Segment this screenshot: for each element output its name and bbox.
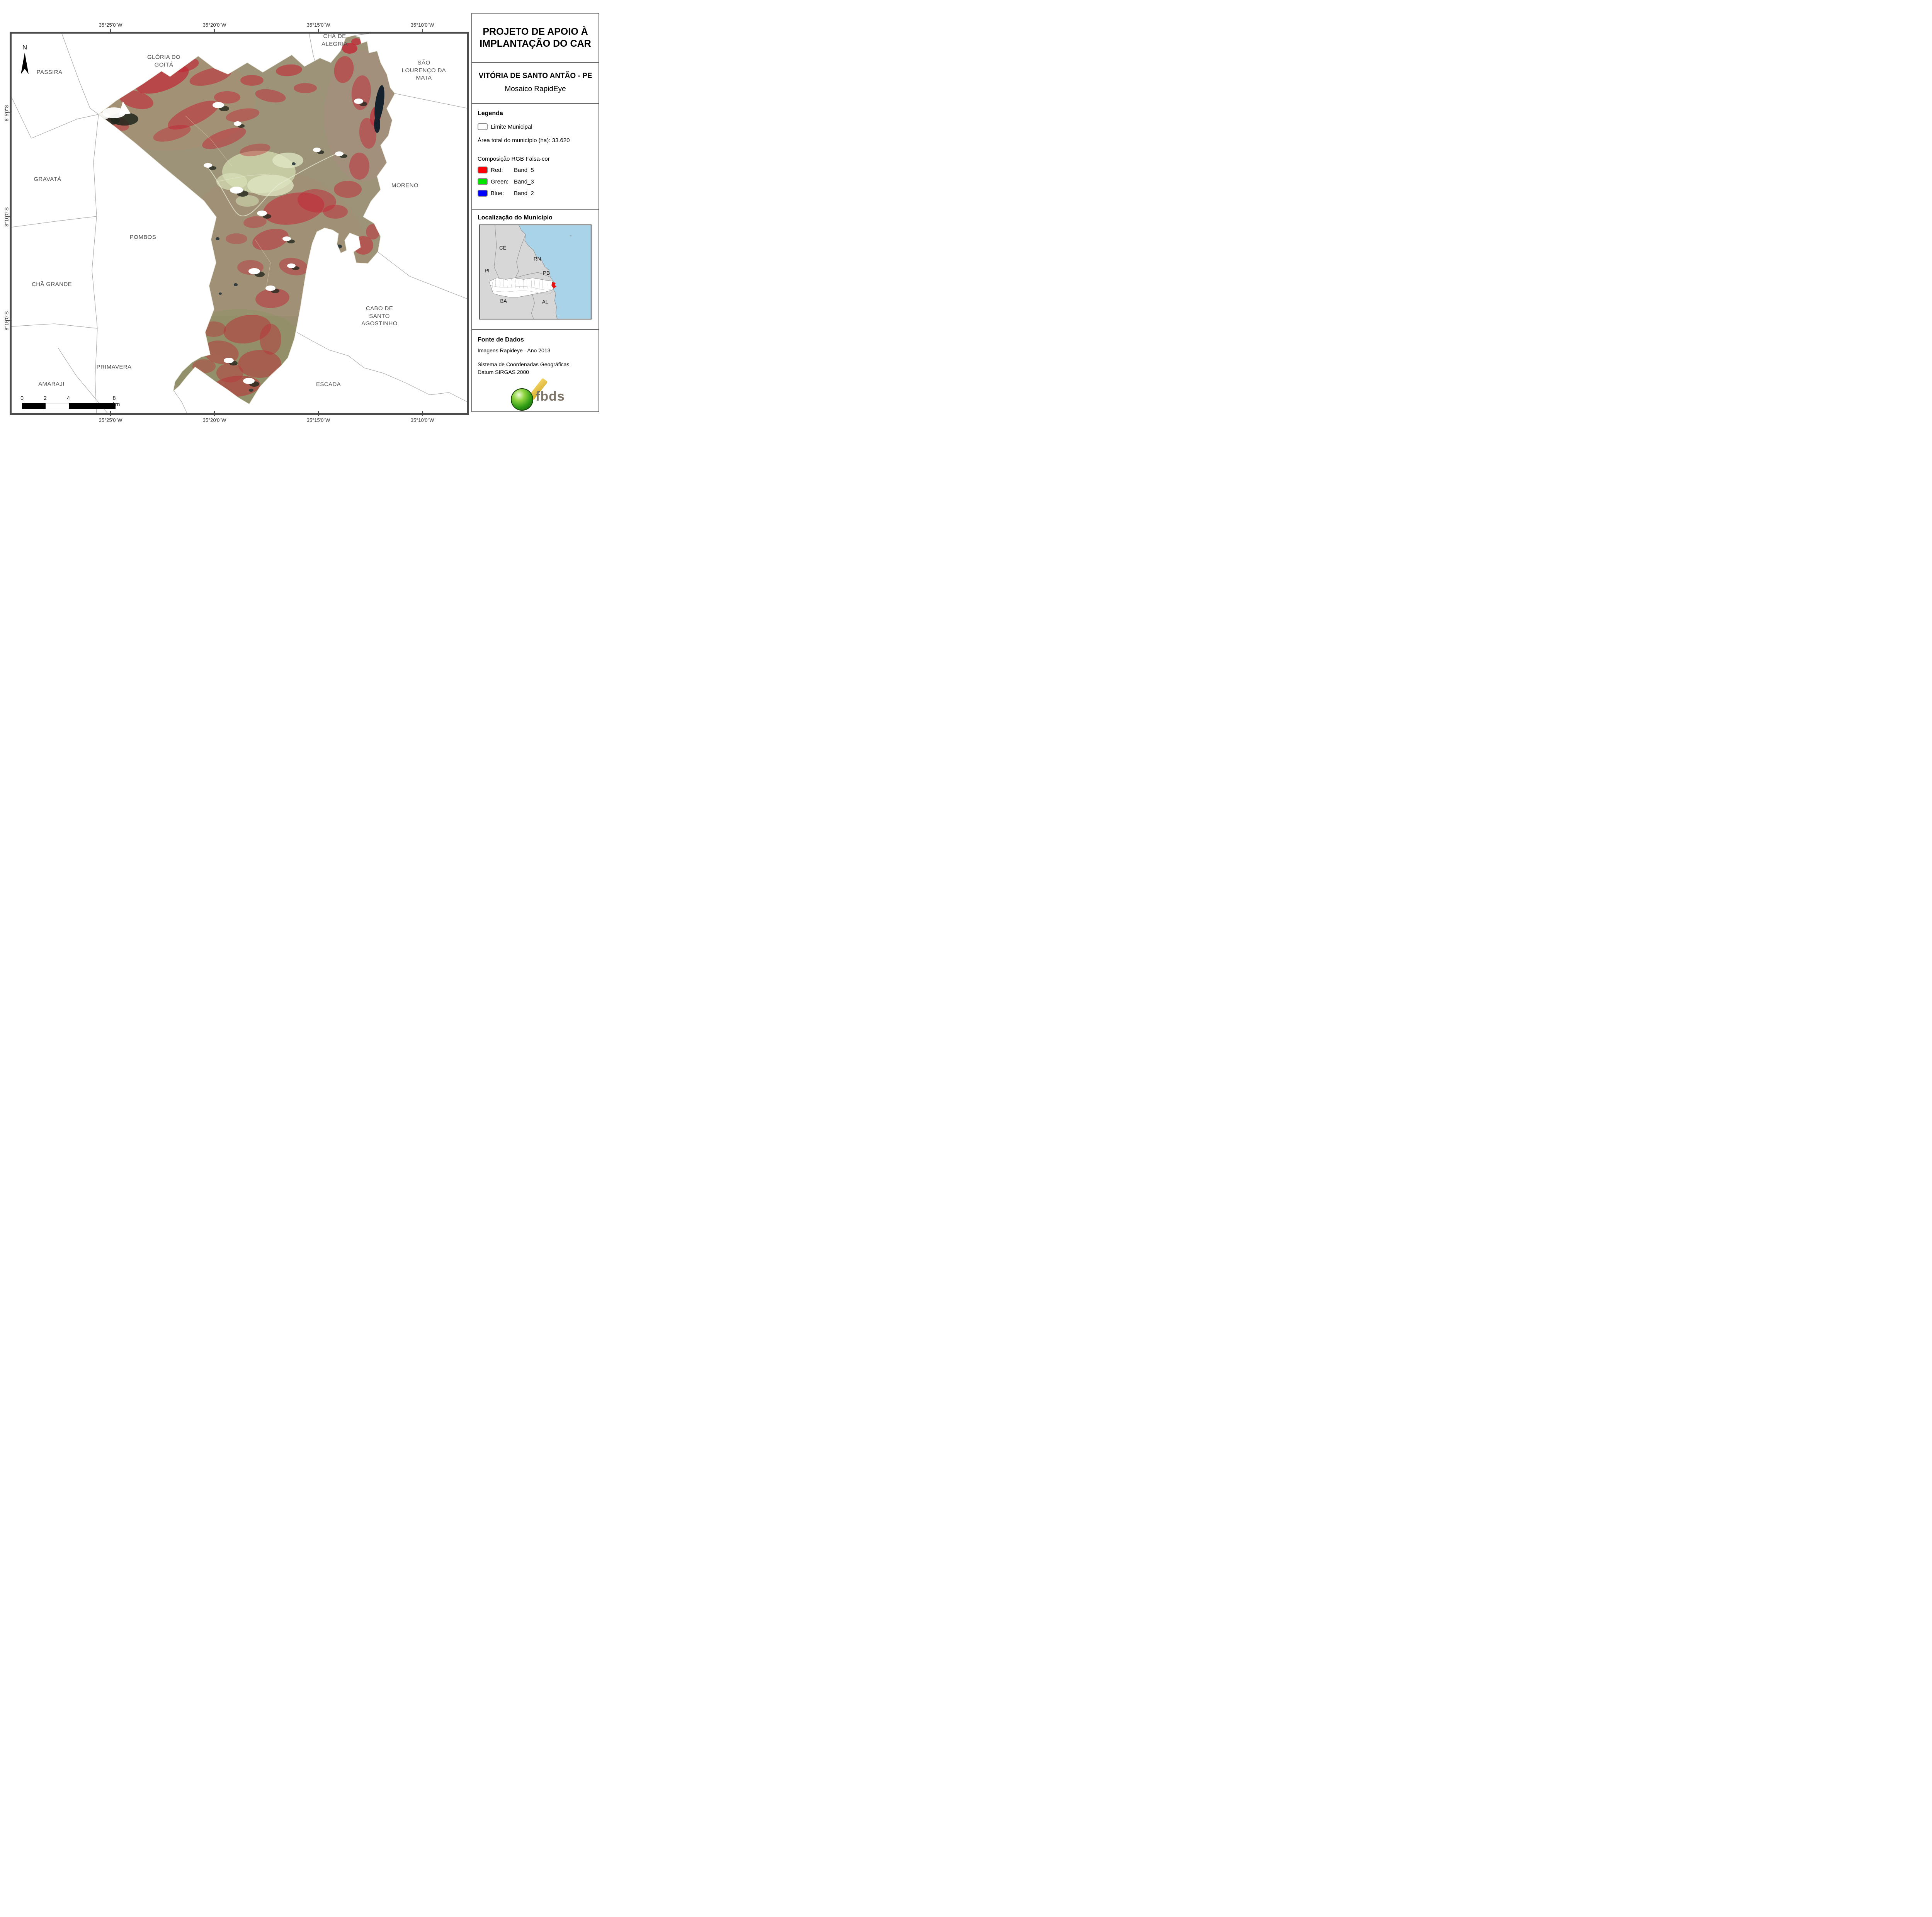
coord-top-3: 35°15'0"W: [307, 22, 330, 28]
fonte-line3: Datum SIRGAS 2000: [478, 369, 529, 375]
inset-island: [570, 235, 571, 236]
scale-2: 2: [44, 395, 47, 401]
red-swatch: [478, 167, 488, 173]
tick-bottom-4: [422, 411, 423, 416]
coord-top-4: 35°10'0"W: [411, 22, 434, 28]
map-subtitle: VITÓRIA DE SANTO ANTÃO - PE Mosaico Rapi…: [472, 62, 599, 103]
panel-divider-4: [472, 329, 599, 330]
coord-bottom-3: 35°15'0"W: [307, 417, 330, 423]
place-cabo: CABO DE SANTO AGOSTINHO: [361, 305, 398, 328]
place-moreno: MORENO: [391, 182, 418, 189]
blue-swatch: [478, 190, 488, 197]
fonte-heading: Fonte de Dados: [478, 336, 524, 343]
fbds-logo-sphere-icon: [511, 388, 533, 411]
limite-label: Limite Municipal: [491, 124, 532, 130]
state-pb: PB: [543, 270, 550, 276]
place-escada: ESCADA: [316, 381, 341, 388]
scale-4: 4: [67, 395, 70, 401]
coord-left-1: 8°5'0"S: [4, 96, 10, 131]
legend-green-row: Green: Band_3: [478, 178, 534, 185]
tick-top-4: [422, 29, 423, 34]
green-band: Band_3: [514, 178, 534, 185]
red-band: Band_5: [514, 167, 534, 173]
fbds-logo: fbds: [505, 379, 579, 416]
rapideye-mosaic: [12, 34, 469, 415]
coord-bottom-4: 35°10'0"W: [411, 417, 434, 423]
place-cha-de-alegria: CHÃ DE ALEGRIA: [321, 33, 348, 48]
place-primavera: PRIMAVERA: [97, 363, 132, 371]
panel-divider-3: [472, 209, 599, 210]
coord-left-2: 8°10'0"S: [4, 200, 10, 235]
locator-inset-map: CE RN PI PB BA AL: [477, 224, 594, 319]
legend-blue-row: Blue: Band_2: [478, 190, 534, 197]
tick-bottom-1: [110, 411, 111, 416]
coord-bottom-1: 35°25'0"W: [99, 417, 122, 423]
north-label: N: [22, 44, 27, 51]
place-sao-lourenco: SÃO LOURENÇO DA MATA: [402, 59, 446, 82]
blue-channel: Blue:: [491, 190, 511, 197]
tick-top-3: [318, 29, 319, 34]
legend-limite-row: Limite Municipal: [478, 123, 532, 130]
project-title: PROJETO DE APOIO À IMPLANTAÇÃO DO CAR: [472, 14, 599, 62]
tick-top-1: [110, 29, 111, 34]
scale-bar-graphic: [22, 403, 116, 409]
panel-divider-2: [472, 103, 599, 104]
place-cha-grande: CHÃ GRANDE: [32, 280, 72, 288]
scale-0: 0: [20, 395, 24, 401]
legend-heading: Legenda: [478, 110, 503, 117]
fonte-line2: Sistema de Coordenadas Geográficas: [478, 361, 569, 367]
fonte-line1: Imagens Rapideye - Ano 2013: [478, 347, 550, 353]
place-passira: PASSIRA: [37, 68, 63, 76]
info-panel: PROJETO DE APOIO À IMPLANTAÇÃO DO CAR VI…: [471, 13, 599, 412]
composition-heading: Composição RGB Falsa-cor: [478, 156, 550, 162]
place-gloria: GLÓRIA DO GOITÁ: [147, 54, 180, 69]
state-ba: BA: [500, 298, 507, 304]
state-pi: PI: [485, 268, 489, 274]
municipality-name: VITÓRIA DE SANTO ANTÃO - PE: [479, 72, 592, 80]
red-channel: Red:: [491, 167, 511, 173]
green-swatch: [478, 178, 488, 185]
scale-bar: 0 2 4 8 km: [22, 395, 122, 410]
coord-top-2: 35°20'0"W: [203, 22, 226, 28]
tick-top-2: [214, 29, 215, 34]
project-title-line1: PROJETO DE APOIO À: [483, 26, 588, 38]
state-al: AL: [542, 299, 548, 304]
area-total-label: Área total do município (ha): 33.620: [478, 137, 570, 144]
fbds-logo-text: fbds: [536, 389, 565, 404]
state-ce: CE: [499, 245, 507, 251]
map-sheet: N 35°25'0"W 35°20'0"W 35°15'0"W 35°10'0"…: [0, 0, 606, 428]
tick-bottom-2: [214, 411, 215, 416]
limite-swatch: [478, 123, 488, 130]
blue-band: Band_2: [514, 190, 534, 197]
north-arrow: N: [21, 44, 29, 74]
map-canvas: N: [12, 34, 469, 415]
tick-bottom-3: [318, 411, 319, 416]
legend-red-row: Red: Band_5: [478, 167, 534, 173]
coord-bottom-2: 35°20'0"W: [203, 417, 226, 423]
localizacao-heading: Localização do Município: [478, 214, 553, 221]
product-name: Mosaico RapidEye: [505, 85, 566, 93]
green-channel: Green:: [491, 178, 511, 185]
coord-left-3: 8°15'0"S: [4, 304, 10, 338]
place-amaraji: AMARAJI: [38, 380, 65, 388]
project-title-line2: IMPLANTAÇÃO DO CAR: [480, 38, 591, 50]
coord-top-1: 35°25'0"W: [99, 22, 122, 28]
state-rn: RN: [534, 256, 541, 262]
place-pombos: POMBOS: [130, 233, 156, 241]
place-gravata: GRAVATÁ: [34, 175, 61, 183]
